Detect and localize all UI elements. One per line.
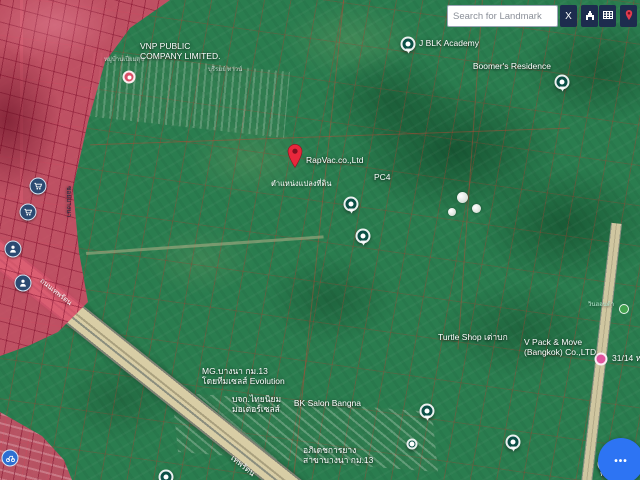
- cart-icon: [24, 203, 33, 221]
- map-marker-label-pc4: PC4: [374, 172, 391, 182]
- map-marker-unnamed-3[interactable]: [159, 470, 174, 480]
- chat-dots: •••: [614, 456, 628, 467]
- person-icon: [19, 274, 28, 292]
- map-marker-label-bk-salon-bangna: BK Salon Bangna: [294, 398, 361, 408]
- map-marker-label-boomers-residence: Boomer's Residence: [473, 61, 551, 71]
- search-clear-button[interactable]: X: [560, 5, 577, 27]
- map-marker-label-apidech-tire: อภิเดชการยางสาขาบางนา กม.13: [303, 445, 373, 465]
- map-marker-label-v-pack-move: V Pack & Move(Bangkok) Co.,LTD.: [524, 337, 598, 357]
- landmark-building-button[interactable]: [581, 5, 598, 27]
- map-marker-person-1[interactable]: [5, 241, 22, 258]
- rider-icon: [5, 449, 15, 467]
- map-marker-store-1[interactable]: [30, 178, 47, 195]
- map-marker-person-2[interactable]: [15, 275, 32, 292]
- search-input[interactable]: [447, 5, 558, 27]
- person-icon: [9, 240, 18, 258]
- map-marker-j-blk-academy[interactable]: [401, 37, 416, 52]
- grid-view-button[interactable]: [599, 5, 616, 27]
- map-marker-turtle-shop[interactable]: [420, 404, 435, 419]
- map-marker-v-pack-move[interactable]: [506, 435, 521, 450]
- map-marker-label-j-blk-academy: J BLK Academy: [419, 38, 479, 48]
- map-marker-unnamed-1[interactable]: [344, 197, 359, 212]
- map-marker-label-thai-niyom: บจก.ไทยนิยมมอเตอร์เซลส์: [232, 394, 281, 414]
- chat-button[interactable]: •••: [598, 438, 640, 480]
- cart-icon: [34, 177, 43, 195]
- map-marker-label-mg-bangna: MG.บางนา กม.13โดยทีมเซลส์ Evolution: [202, 366, 285, 386]
- map-marker-label-rapvac: RapVac.co.,Ltd: [306, 155, 364, 165]
- marker-layer-button[interactable]: [620, 5, 637, 27]
- map-canvas[interactable]: J BLK AcademyBoomer's ResidenceVNP PUBLI…: [0, 0, 640, 480]
- map-marker-label-dorm-31-14: 31/14 หอพัก ส.: [612, 353, 640, 363]
- map-marker-label-turtle-shop: Turtle Shop เต่าบก: [438, 332, 508, 342]
- landmark-building-icon: [584, 9, 596, 24]
- marker-icon: [623, 9, 635, 24]
- grid-icon: [602, 9, 614, 24]
- map-marker-unnamed-2[interactable]: [407, 439, 418, 450]
- map-marker-dorm-31-14[interactable]: [595, 353, 608, 366]
- map-marker-rapvac[interactable]: [287, 143, 304, 173]
- map-marker-unnamed-5[interactable]: [619, 304, 629, 314]
- map-marker-boomers-residence[interactable]: [555, 75, 570, 90]
- map-marker-store-2[interactable]: [20, 204, 37, 221]
- search-bar: X: [447, 5, 637, 27]
- marker-layer: J BLK AcademyBoomer's ResidenceVNP PUBLI…: [0, 0, 640, 480]
- map-marker-pc4[interactable]: [356, 229, 371, 244]
- map-marker-label-vnp-public: VNP PUBLICCOMPANY LIMITED.: [140, 41, 220, 61]
- map-marker-rider[interactable]: [2, 450, 19, 467]
- map-app: J BLK AcademyBoomer's ResidenceVNP PUBLI…: [0, 0, 640, 480]
- map-marker-vnp-public[interactable]: [123, 71, 136, 84]
